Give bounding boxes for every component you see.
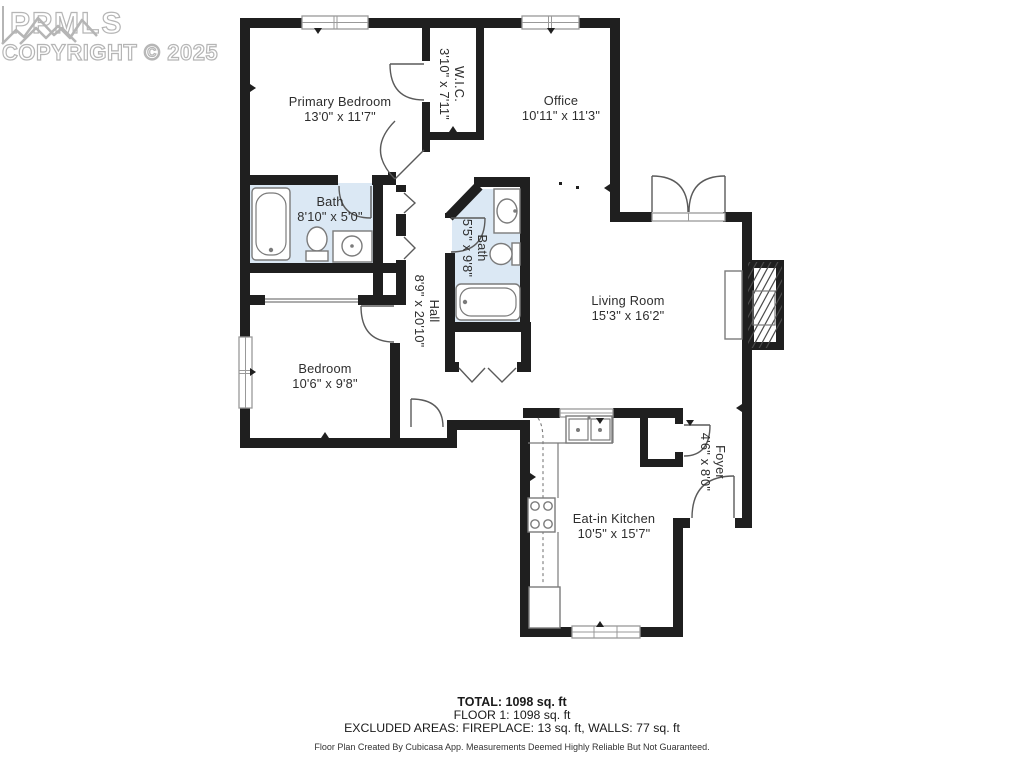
- room-label-wic: W.I.C. 3'10" x 7'11": [437, 48, 467, 120]
- window-office: [522, 16, 579, 29]
- room-label-bath2: Bath 5'5" x 9'8": [460, 219, 490, 277]
- appliance-icon: [529, 587, 560, 628]
- hall-door: [411, 399, 443, 427]
- summary-total: TOTAL: 1098 sq. ft: [0, 695, 1024, 709]
- front-door-opening: [690, 518, 735, 528]
- kitchen-sink-icon: [566, 416, 612, 443]
- floor-plan-drawing: [0, 0, 1024, 768]
- fireplace-hearth: [725, 271, 742, 339]
- room-label-living-room: Living Room 15'3" x 16'2": [591, 293, 664, 323]
- french-doors: [652, 176, 725, 212]
- room-label-primary-bedroom: Primary Bedroom 13'0" x 11'7": [289, 94, 392, 124]
- plan-summary: TOTAL: 1098 sq. ft FLOOR 1: 1098 sq. ft …: [0, 695, 1024, 752]
- window-primary-bedroom: [302, 16, 368, 29]
- room-label-office: Office 10'11" x 11'3": [522, 93, 600, 123]
- summary-excluded: EXCLUDED AREAS: FIREPLACE: 13 sq. ft, WA…: [0, 722, 1024, 735]
- bedroom-door: [361, 306, 394, 342]
- linen-closet-bifold-doors: [459, 368, 516, 382]
- room-label-bedroom: Bedroom 10'6" x 9'8": [292, 361, 357, 391]
- floor-plan-page: Primary Bedroom 13'0" x 11'7" W.I.C. 3'1…: [0, 0, 1024, 768]
- wic-door: [390, 64, 424, 100]
- watermark: PPMLS COPYRIGHT © 2025: [0, 4, 230, 66]
- room-label-foyer: Foyer 4'6" x 8'0": [698, 433, 728, 491]
- window-kitchen: [572, 626, 640, 638]
- bedroom-closet-sliding-doors: [265, 299, 358, 302]
- mountains-logo-icon: [0, 4, 100, 46]
- toilet-icon: [307, 227, 327, 251]
- wic-door-opening: [421, 61, 431, 102]
- primary-bedroom-door: [381, 121, 425, 179]
- room-label-bath1: Bath 8'10" x 5'0": [297, 194, 362, 224]
- toilet-tank-icon: [512, 243, 520, 265]
- room-label-hall: Hall 8'9" x 20'10": [412, 275, 442, 348]
- french-door-sill: [652, 213, 725, 221]
- toilet-icon: [490, 244, 512, 265]
- summary-disclaimer: Floor Plan Created By Cubicasa App. Meas…: [0, 742, 1024, 752]
- room-label-eat-in-kitchen: Eat-in Kitchen 10'5" x 15'7": [573, 511, 655, 541]
- fireplace: [700, 258, 815, 354]
